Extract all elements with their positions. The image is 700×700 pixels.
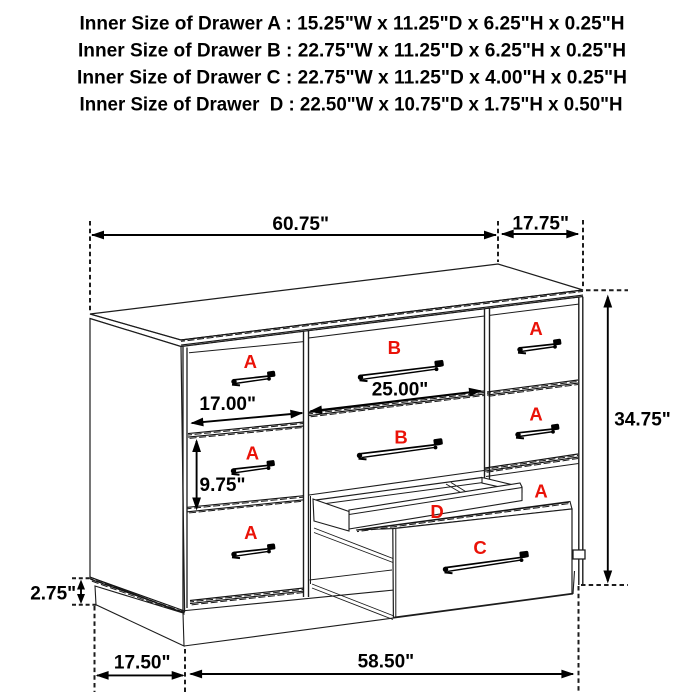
- svg-text:A: A: [529, 318, 542, 339]
- svg-text:D: D: [430, 501, 443, 522]
- svg-text:Inner Size of Drawer C : 22.75: Inner Size of Drawer C : 22.75"W x 11.25…: [77, 68, 627, 89]
- svg-text:9.75": 9.75": [200, 475, 246, 496]
- svg-text:A: A: [529, 404, 542, 425]
- svg-text:C: C: [473, 537, 486, 558]
- svg-text:17.75": 17.75": [512, 213, 569, 234]
- svg-text:17.00": 17.00": [199, 394, 256, 415]
- svg-text:B: B: [394, 427, 407, 448]
- svg-text:A: A: [246, 443, 259, 464]
- svg-text:B: B: [388, 337, 401, 358]
- svg-text:A: A: [534, 481, 547, 502]
- svg-text:60.75": 60.75": [272, 214, 329, 235]
- svg-text:58.50": 58.50": [358, 651, 415, 672]
- svg-text:Inner Size of Drawer D : 22.5: Inner Size of Drawer D : 22.50"W x 10.75…: [80, 95, 623, 116]
- svg-text:2.75": 2.75": [30, 583, 76, 604]
- svg-text:34.75": 34.75": [614, 409, 671, 430]
- svg-text:A: A: [244, 351, 257, 372]
- svg-text:Inner Size of Drawer A : 15.25: Inner Size of Drawer A : 15.25"W x 11.25…: [80, 14, 625, 35]
- svg-text:Inner Size of Drawer B : 22.75: Inner Size of Drawer B : 22.75"W x 11.25…: [78, 41, 626, 62]
- svg-text:25.00": 25.00": [372, 380, 429, 401]
- svg-text:17.50": 17.50": [114, 653, 171, 674]
- svg-text:A: A: [244, 522, 257, 543]
